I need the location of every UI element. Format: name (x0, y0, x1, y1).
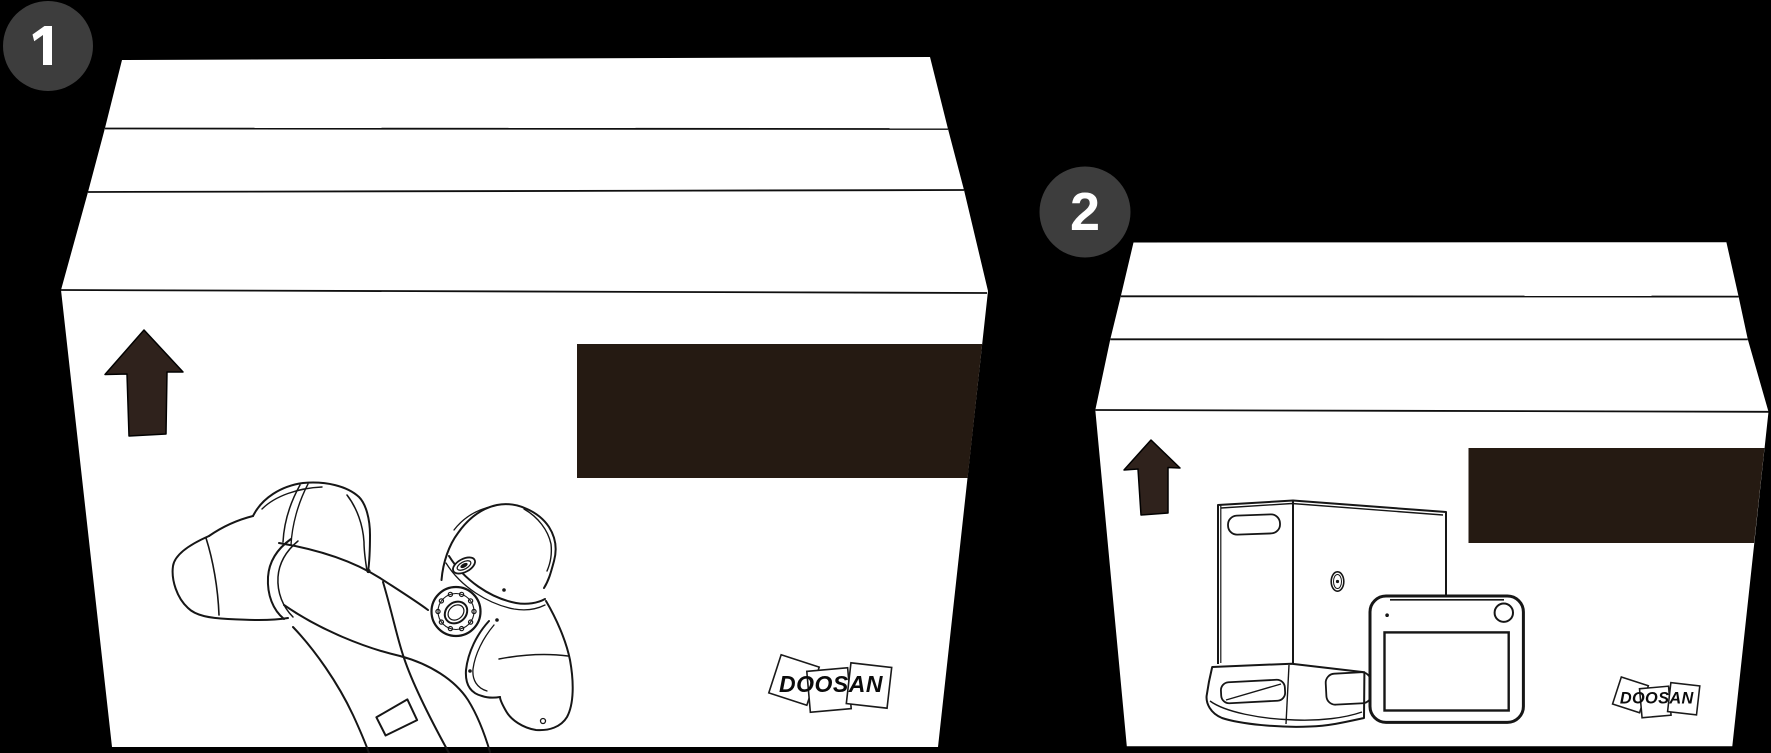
svg-text:DOOSAN: DOOSAN (1620, 689, 1695, 707)
svg-text:2: 2 (1070, 182, 1100, 242)
svg-text:DOOSAN: DOOSAN (779, 671, 883, 697)
